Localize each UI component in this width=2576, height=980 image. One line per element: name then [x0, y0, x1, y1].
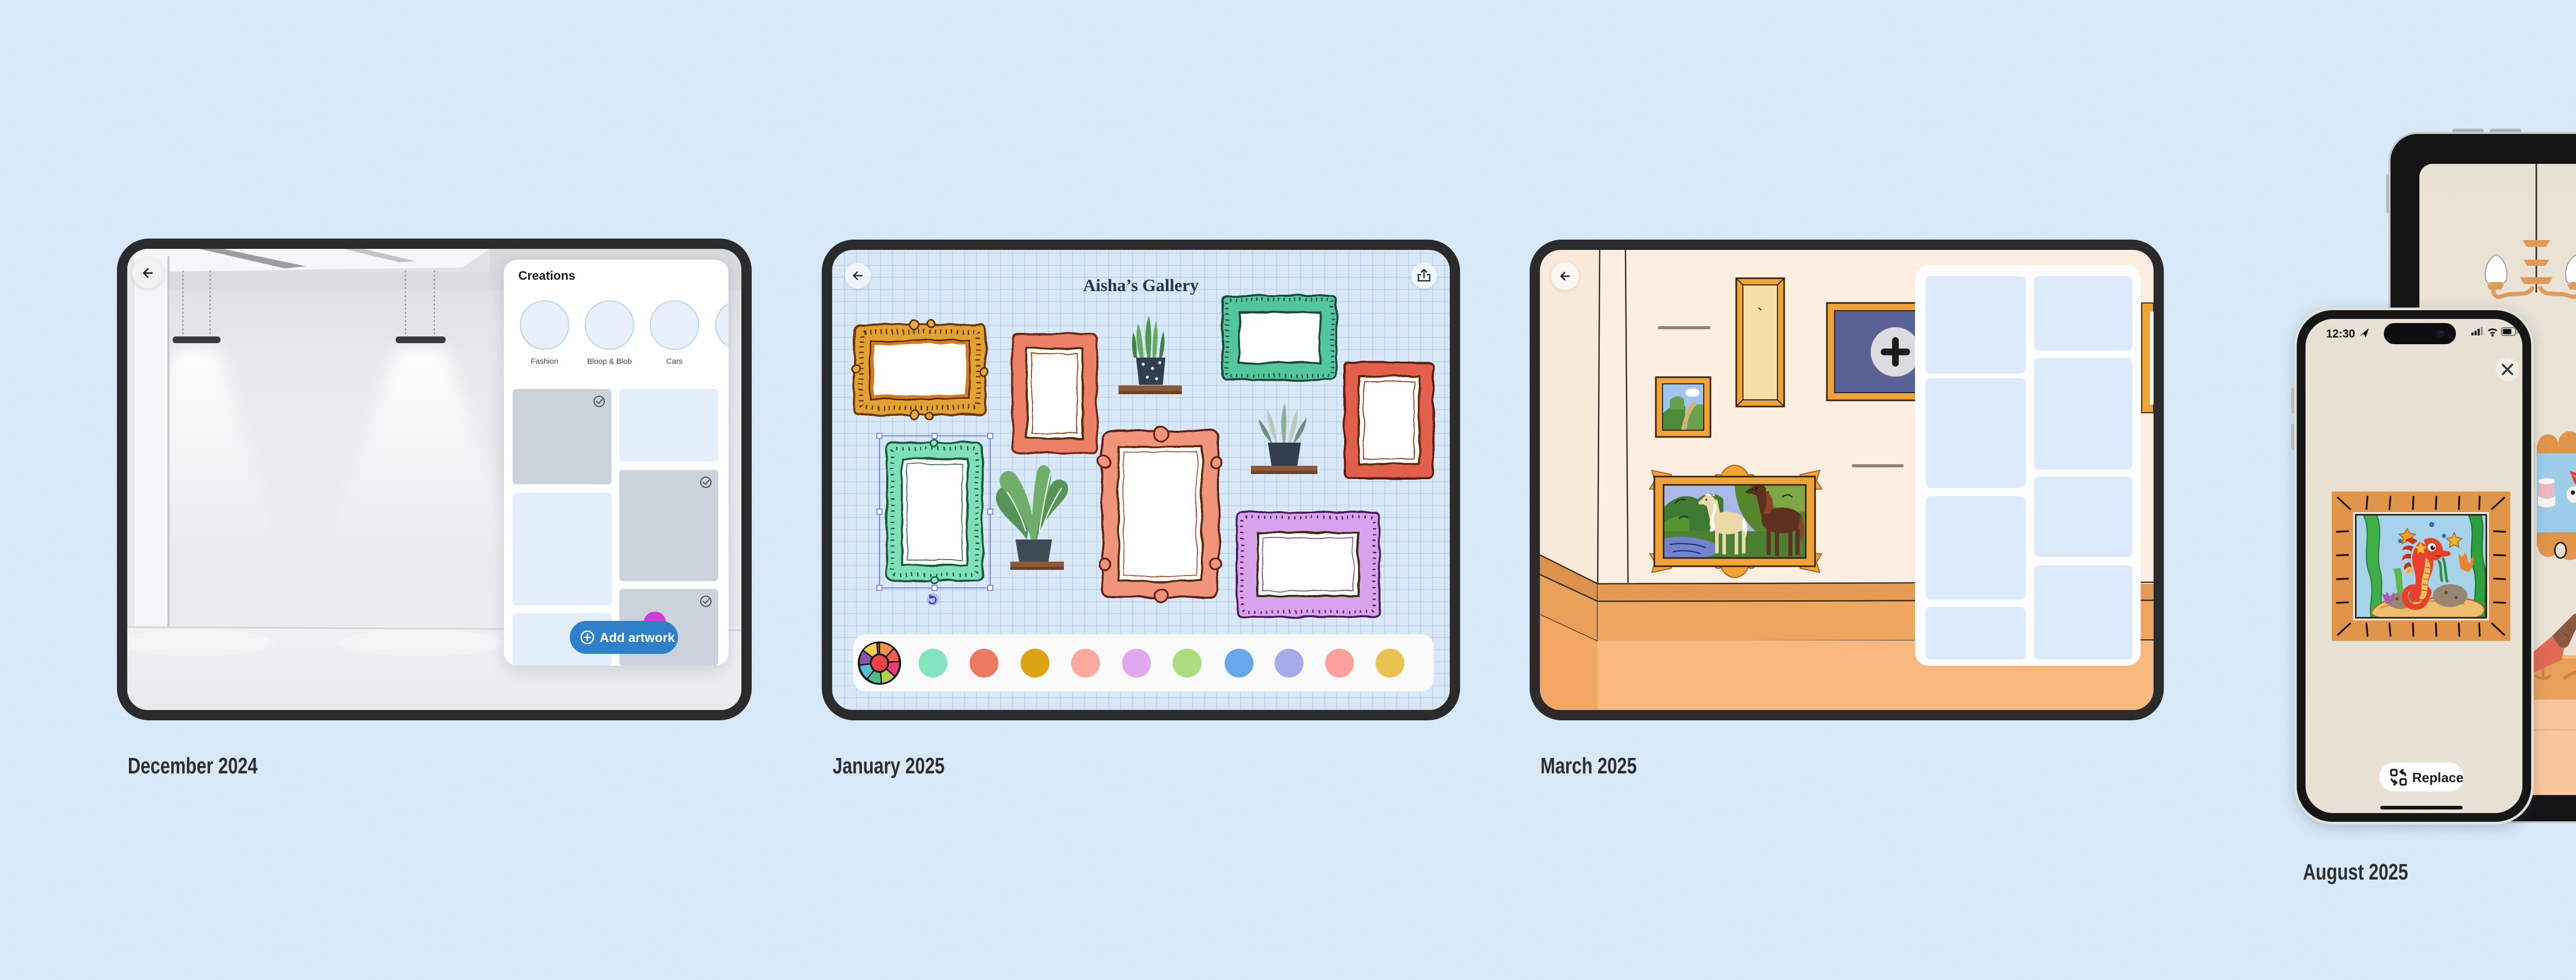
svg-text:Bloop & Blob: Bloop & Blob: [587, 357, 632, 366]
svg-text:12:30: 12:30: [2326, 327, 2355, 340]
svg-text:Replace: Replace: [2412, 770, 2464, 785]
svg-text:Cars: Cars: [666, 357, 683, 366]
svg-text:Fashion: Fashion: [531, 357, 558, 366]
svg-text:Add artwork: Add artwork: [600, 631, 675, 645]
